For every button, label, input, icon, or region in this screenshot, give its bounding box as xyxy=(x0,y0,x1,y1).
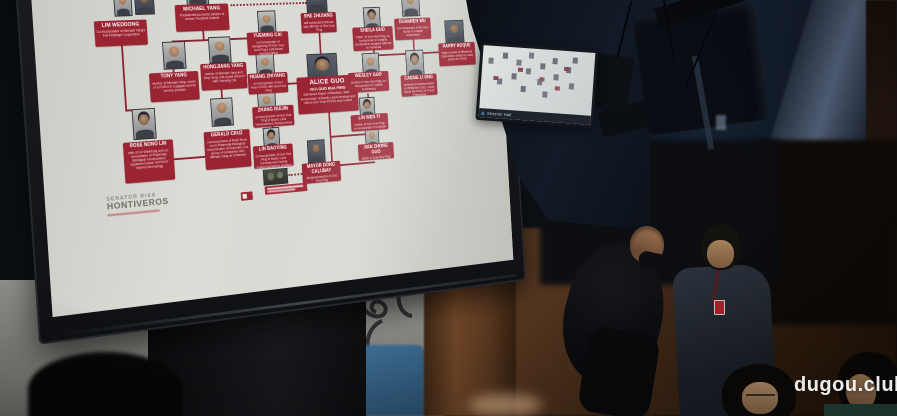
node-desc: brother of Michael Yang; owner of a POGO… xyxy=(151,79,197,93)
broadcast-logo-icon xyxy=(481,111,485,115)
node-desc: mother of Michael Yang and Tony Yang; ha… xyxy=(202,70,245,84)
rig-reflection xyxy=(716,115,726,130)
right-woman-shirt xyxy=(824,404,897,416)
mini-screen-caption: Session Hall xyxy=(487,111,512,118)
node-desc: wife of Lin Weddong and co-incorporator … xyxy=(125,148,172,171)
chart-node-gerald-cruz: GERALD CRUZco-incorporator of Rose Nono … xyxy=(204,129,252,170)
org-chart-slide: LIM WEDDONGCo-incorporator of Michael Ya… xyxy=(29,0,513,317)
node-desc: authorized representative of Whirlwind C… xyxy=(402,81,436,97)
mini-chart-red-boxes xyxy=(493,76,498,80)
portrait-photo xyxy=(210,97,234,127)
chart-node-rose-nono-lin: ROSE NONO LINwife of Lin Weddong and co-… xyxy=(123,139,175,183)
node-desc: brother of Guo Hua Ping; co-incorporator… xyxy=(350,79,388,92)
node-desc: legal counsel of Whirlwind Corporation; … xyxy=(440,49,474,61)
node-desc: co-incorporator of Hongsheng POGO; Guo H… xyxy=(249,39,288,55)
portrait-photo xyxy=(401,0,421,17)
chart-node-lin-baoying: LIN BAOYINGco-incorporator of Guo Hua Pi… xyxy=(253,143,294,168)
camera-rig-body xyxy=(632,0,770,136)
chart-node-jian-zhong-guo: JIAN ZHONG GUOfather of Guo Hua Ping; co… xyxy=(358,142,394,161)
young-man-face xyxy=(707,240,734,268)
connector-line xyxy=(121,46,127,111)
portrait-photo xyxy=(444,20,464,44)
mini-chart-boxes xyxy=(488,58,493,64)
chart-node-michael-yang: MICHAEL YANGPresidential economic advise… xyxy=(175,3,230,31)
chart-node-yueming-cai: YUEMING CAIco-incorporator of Hongsheng … xyxy=(247,31,290,55)
portrait-photo xyxy=(162,41,187,70)
connector-line xyxy=(328,112,333,166)
connector-line xyxy=(319,32,322,54)
dotted-connector-line xyxy=(231,2,307,6)
chart-node-duanren-wu: DUANREN WUco-incorporator of the Guo fam… xyxy=(394,18,431,41)
chart-node-harry-roque: HARRY ROQUElegal counsel of Whirlwind Co… xyxy=(438,42,476,66)
chart-node-cassie-li-ong: CASSIE LI ONGauthorized representative o… xyxy=(401,73,438,96)
chart-node-wesley-guo: WESLEY GUObrother of Guo Hua Ping; co-in… xyxy=(348,71,389,93)
portrait-photo xyxy=(132,108,157,140)
node-desc: alleged protector of Guo Hua Ping xyxy=(304,173,339,183)
chart-node-sheila-guo: SHEILA GUO"sister" of Guo Hua Ping; co-i… xyxy=(352,26,393,51)
node-desc: Presidential economic adviser of former … xyxy=(177,12,227,21)
portrait-photo-horned-figure xyxy=(134,0,155,15)
portrait-photo xyxy=(307,139,326,164)
node-desc: co-incorporator of Guo Hua Ping in Baofu… xyxy=(254,113,293,128)
node-desc: co-incorporator of the Guo family in mul… xyxy=(396,25,430,37)
mini-monitor: Session Hall xyxy=(475,42,598,128)
node-desc: Co-incorporator of Michael Yang's Full H… xyxy=(96,28,145,38)
small-red-logo xyxy=(241,191,253,200)
chart-node-tony-yang: TONY YANGbrother of Michael Yang; owner … xyxy=(149,71,200,102)
man-in-suit-legs xyxy=(577,325,662,416)
group-photo xyxy=(263,168,289,186)
node-desc: co-incorporator of Rose Nono Lin in Phar… xyxy=(206,137,249,159)
chart-node-she-zhijiang: SHE ZHIJIANGself-confessed Chinese spy w… xyxy=(301,12,337,33)
out-of-focus-highlight xyxy=(468,394,542,416)
portrait-photo xyxy=(208,36,232,63)
connector-line xyxy=(173,156,205,160)
eyeglasses xyxy=(746,394,775,399)
senate-hearing-photo: LIM WEDDONGCo-incorporator of Michael Ya… xyxy=(0,0,897,416)
portrait-photo xyxy=(113,0,133,17)
node-desc: co-incorporator of Guo Hua Ping in Baofu… xyxy=(255,151,292,168)
blue-chair xyxy=(362,345,426,416)
chart-node-huang-zhiyang: HUANG ZHIYANGco-incorporator of Zun Yuan… xyxy=(248,72,289,95)
node-desc: mother of Guo Hua Ping; co-incorporator … xyxy=(353,121,388,132)
watermark: dugou.club xyxy=(794,374,897,397)
node-desc: co-incorporator of Zun Yuan POGO with Gu… xyxy=(250,80,287,93)
chart-node-mayor: MAYOR DONG CALUBAYalleged protector of G… xyxy=(302,161,341,184)
node-desc: self-confessed Chinese spy with ties to … xyxy=(303,20,336,32)
chart-node-lim-weddong: LIM WEDDONGCo-incorporator of Michael Ya… xyxy=(94,19,148,46)
chart-node-zhang-ruijin: ZHANG RUIJINco-incorporator of Guo Hua P… xyxy=(252,105,294,128)
red-id-badge xyxy=(714,300,725,315)
node-desc: dismissed Mayor of Bamban, Tarlac; incor… xyxy=(299,90,357,105)
mini-monitor-screen: Session Hall xyxy=(479,45,596,125)
chart-node-lin-wen-yi: LIN WEN YImother of Guo Hua Ping; co-inc… xyxy=(351,113,389,132)
chart-node-hongjiang-yang: HONGJIANG YANGmother of Michael Yang and… xyxy=(200,62,247,91)
node-desc: "sister" of Guo Hua Ping; co-incorporato… xyxy=(354,34,392,50)
senator-hontiveros-logo: Senator Risa Hontiveros xyxy=(106,191,169,216)
portrait-photo xyxy=(257,10,277,33)
